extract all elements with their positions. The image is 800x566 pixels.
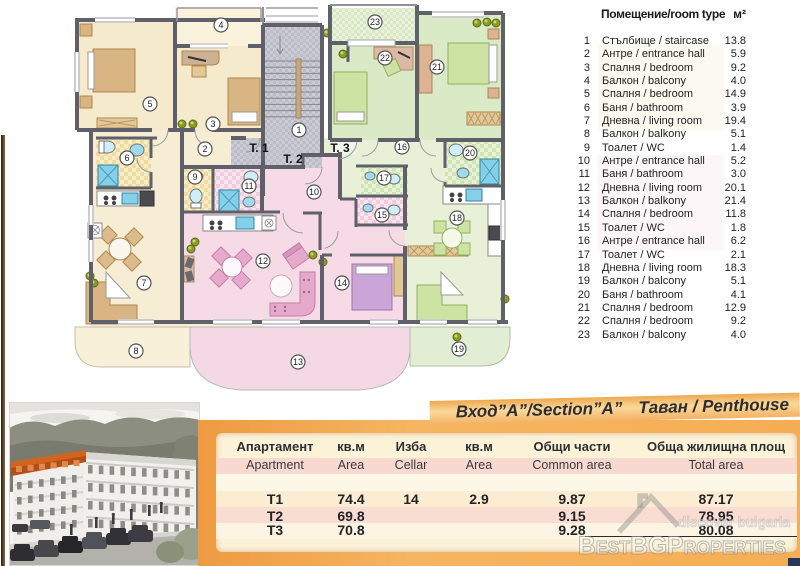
svg-text:BestBGProperties: BestBGProperties <box>578 532 786 560</box>
svg-text:discover bulgaria: discover bulgaria <box>678 514 791 531</box>
